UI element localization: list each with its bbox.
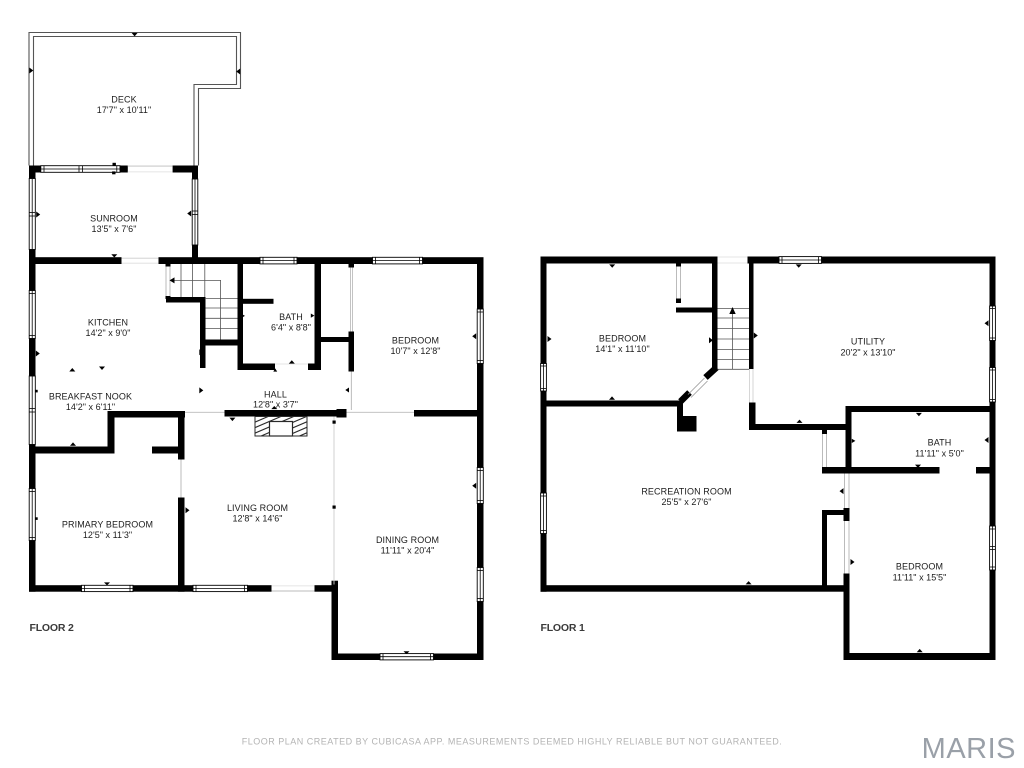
svg-text:13'5" x 7'6": 13'5" x 7'6": [92, 224, 137, 234]
svg-text:FLOOR 2: FLOOR 2: [30, 622, 74, 634]
svg-text:DINING ROOM: DINING ROOM: [376, 535, 439, 545]
svg-text:DECK: DECK: [111, 95, 136, 105]
svg-text:14'2" x 9'0": 14'2" x 9'0": [86, 328, 131, 338]
svg-text:25'5" x 27'6": 25'5" x 27'6": [661, 497, 711, 507]
svg-text:UTILITY: UTILITY: [851, 337, 885, 347]
svg-text:12'8" x 14'6": 12'8" x 14'6": [232, 514, 282, 524]
svg-text:BATH: BATH: [928, 438, 952, 448]
svg-text:11'11" x 20'4": 11'11" x 20'4": [381, 546, 435, 556]
svg-text:PRIMARY BEDROOM: PRIMARY BEDROOM: [62, 520, 153, 530]
svg-text:BEDROOM: BEDROOM: [599, 334, 646, 344]
svg-text:12'5" x 11'3": 12'5" x 11'3": [83, 530, 132, 540]
svg-text:12'8" x 3'7": 12'8" x 3'7": [253, 400, 298, 410]
svg-text:BEDROOM: BEDROOM: [896, 562, 943, 572]
svg-text:FLOOR PLAN CREATED BY CUBICASA: FLOOR PLAN CREATED BY CUBICASA APP. MEAS…: [242, 737, 782, 747]
svg-text:KITCHEN: KITCHEN: [88, 318, 128, 328]
svg-text:LIVING ROOM: LIVING ROOM: [227, 503, 288, 513]
svg-text:BATH: BATH: [279, 312, 303, 322]
svg-text:BEDROOM: BEDROOM: [392, 336, 439, 346]
svg-text:17'7" x 10'11": 17'7" x 10'11": [97, 105, 151, 115]
svg-text:FLOOR 1: FLOOR 1: [541, 622, 585, 634]
svg-text:MARIS: MARIS: [922, 733, 1016, 765]
svg-text:HALL: HALL: [264, 390, 287, 400]
svg-text:11'11" x 5'0": 11'11" x 5'0": [915, 449, 964, 459]
svg-text:14'1" x 11'10": 14'1" x 11'10": [595, 344, 649, 354]
svg-text:14'2" x 6'11": 14'2" x 6'11": [66, 402, 115, 412]
svg-text:11'11" x 15'5": 11'11" x 15'5": [893, 573, 947, 583]
svg-text:SUNROOM: SUNROOM: [90, 214, 138, 224]
svg-text:20'2" x 13'10": 20'2" x 13'10": [840, 348, 895, 358]
svg-text:RECREATION ROOM: RECREATION ROOM: [641, 487, 731, 497]
svg-text:BREAKFAST NOOK: BREAKFAST NOOK: [49, 392, 132, 402]
svg-text:10'7" x 12'8": 10'7" x 12'8": [390, 346, 440, 356]
svg-text:6'4" x 8'8": 6'4" x 8'8": [271, 323, 311, 333]
